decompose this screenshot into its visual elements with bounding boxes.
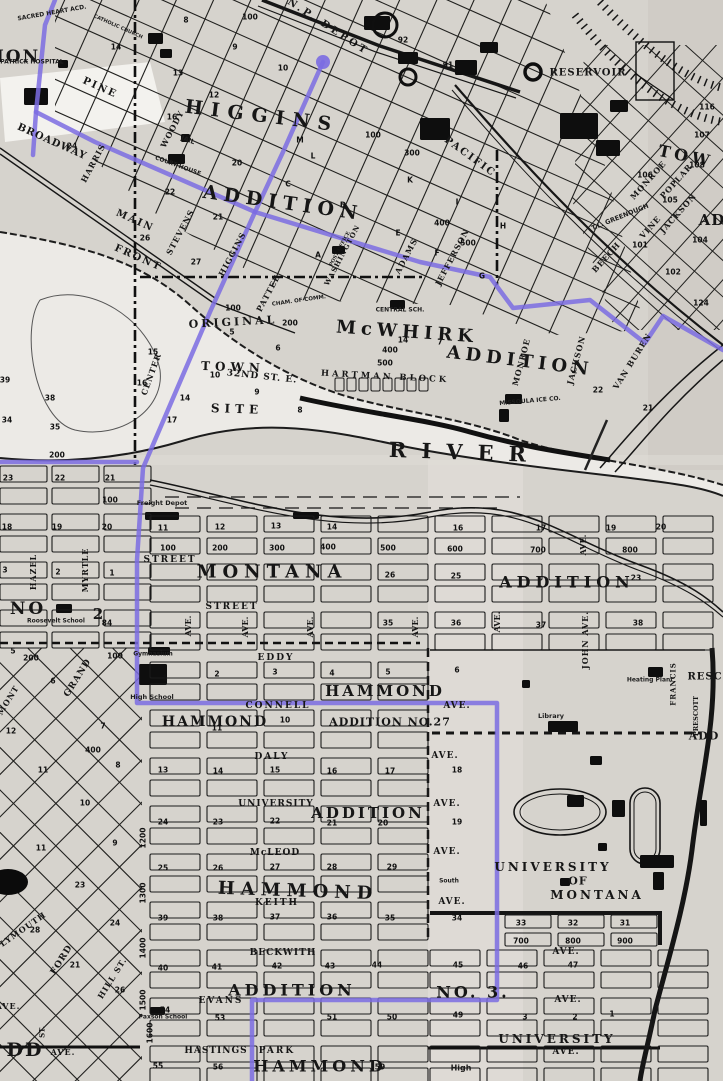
- block-number: 11: [158, 524, 168, 533]
- block-number: 500: [380, 544, 396, 553]
- region-label: UNIVERSITY: [498, 1032, 615, 1046]
- street-label: PACIFIC: [442, 135, 498, 180]
- region-label: DD: [7, 1039, 44, 1061]
- block-number: 13: [173, 69, 183, 78]
- block-number: 102: [665, 268, 681, 277]
- block-number: 900: [617, 937, 633, 946]
- street-label: MAIN: [114, 208, 156, 235]
- block-number: 91: [443, 61, 453, 70]
- poi-label: Heating Plant: [627, 677, 673, 684]
- block-number: 15: [148, 348, 158, 357]
- block-number: 92: [398, 36, 408, 45]
- block-number: 11: [36, 844, 46, 853]
- street-label: FRANCIS: [669, 662, 678, 706]
- street-label: STREET: [143, 555, 196, 565]
- street-label: AVE.: [552, 947, 579, 957]
- block-number: 43: [325, 962, 335, 971]
- block-number: 21: [70, 961, 80, 970]
- street-label: AVE.: [578, 535, 588, 556]
- poi-label: High: [451, 1064, 472, 1073]
- block-number: 14: [213, 767, 223, 776]
- poi-label: COURT HOUSE: [154, 154, 202, 177]
- block-number: 29: [387, 863, 397, 872]
- block-number: 5: [229, 328, 234, 337]
- block-number: 21: [327, 819, 337, 828]
- block-number: 35: [385, 914, 395, 923]
- region-label: HARTMAN BLOCK: [321, 369, 450, 386]
- block-number: 42: [272, 962, 282, 971]
- block-number: 28: [327, 863, 337, 872]
- block-number: 24: [110, 919, 120, 928]
- block-number: 107: [694, 131, 710, 140]
- block-number: 1500: [139, 990, 148, 1011]
- block-number: 44: [372, 961, 382, 970]
- block-number: 25: [158, 864, 168, 873]
- block-number: 1: [162, 674, 167, 683]
- block-number: 59: [375, 1063, 385, 1072]
- block-number: 21: [213, 213, 223, 222]
- street-label: AVE.: [492, 612, 502, 633]
- region-label: UNIVERSITY: [494, 860, 611, 874]
- block-number: 16: [327, 767, 337, 776]
- block-number: 38: [633, 619, 643, 628]
- block-number: 1: [109, 569, 114, 578]
- street-label: JOHN AVE.: [580, 611, 590, 669]
- street-label: PLYMOUTH: [0, 909, 48, 952]
- region-label: AD: [699, 211, 723, 229]
- block-number: 14: [111, 43, 121, 52]
- block-number: 400: [382, 346, 398, 355]
- block-number: 33: [516, 919, 526, 928]
- block-number: 55: [153, 1062, 163, 1071]
- block-number: 300: [404, 149, 420, 158]
- block-number: 37: [536, 621, 546, 630]
- block-number: 700: [513, 937, 529, 946]
- block-number: 14: [180, 394, 190, 403]
- block-number: 18: [452, 766, 462, 775]
- block-number: 17: [167, 416, 177, 425]
- block-number: 16: [167, 113, 177, 122]
- street-label: VAN BUREN: [611, 331, 654, 391]
- street-label: AVE.: [552, 1047, 579, 1057]
- street-label: PATTEE: [254, 273, 282, 314]
- block-number: 800: [565, 937, 581, 946]
- street-label: GRAND: [62, 657, 93, 699]
- block-number: 38: [45, 394, 55, 403]
- block-number: 600: [447, 545, 463, 554]
- block-number: 47: [568, 961, 578, 970]
- block-number: 84: [102, 619, 112, 628]
- block-number: 39: [158, 914, 168, 923]
- block-number: 3: [272, 668, 277, 677]
- street-label: HASTINGS: [184, 1046, 247, 1056]
- street-label: AVE.: [438, 897, 465, 907]
- block-number: 45: [453, 961, 463, 970]
- block-number: 10: [278, 64, 288, 73]
- region-label: MONTANA: [197, 562, 348, 583]
- street-label: AVE.: [431, 751, 458, 761]
- region-label: ADDITION NO.27: [329, 716, 451, 729]
- block-number: 104: [692, 236, 708, 245]
- street-label: BROADWAY: [16, 122, 89, 163]
- street-label: DALY: [255, 752, 290, 762]
- street-label: AVE.: [51, 1047, 76, 1057]
- block-number: D: [340, 201, 346, 210]
- block-number: 56: [213, 1063, 223, 1072]
- block-number: 16: [137, 379, 147, 388]
- block-number: 11: [212, 724, 222, 733]
- street-label: EVANS: [199, 996, 244, 1006]
- block-number: 22: [55, 474, 65, 483]
- street-label: AVE.: [305, 617, 315, 638]
- block-number: 2: [214, 670, 219, 679]
- plat-map: IONHIGGINSADDITIONTOWADMcWHIRKADDITIONOR…: [0, 0, 723, 1081]
- block-number: 19: [452, 818, 462, 827]
- block-number: 26: [140, 234, 150, 243]
- block-number: 12: [209, 91, 219, 100]
- block-number: 20: [232, 159, 242, 168]
- region-label: RIVER: [389, 437, 542, 467]
- block-number: 18: [2, 523, 12, 532]
- block-number: 100: [242, 13, 258, 22]
- street-label: ST.: [38, 1026, 47, 1038]
- block-number: 5: [10, 647, 15, 656]
- street-label: CONNELL: [246, 701, 311, 711]
- block-number: 100: [160, 544, 176, 553]
- block-number: 101: [632, 241, 648, 250]
- block-number: 105: [662, 196, 678, 205]
- street-label: BECKWITH: [250, 948, 317, 958]
- block-number: 100: [365, 131, 381, 140]
- poi-label: CENTRAL SCH.: [376, 307, 425, 314]
- poi-label: CATHOLIC CHURCH: [93, 13, 144, 40]
- block-number: 10: [210, 371, 220, 380]
- street-label: FRONT: [113, 243, 164, 274]
- poi-label: Gymnasium: [133, 651, 173, 658]
- block-number: 1400: [139, 938, 148, 959]
- block-number: 34: [2, 416, 12, 425]
- block-number: 20: [102, 523, 112, 532]
- block-number: 200: [282, 319, 298, 328]
- region-label: ADDITION: [499, 573, 635, 592]
- block-number: F: [434, 249, 439, 258]
- street-label: MYRTLE: [80, 548, 90, 593]
- block-number: A: [315, 251, 321, 260]
- block-number: 7: [437, 338, 442, 347]
- block-number: 23: [75, 881, 85, 890]
- block-number: 1300: [139, 883, 148, 904]
- block-number: 200: [212, 544, 228, 553]
- block-number: 26: [385, 571, 395, 580]
- block-number: 10: [280, 716, 290, 725]
- block-number: 10: [80, 799, 90, 808]
- block-number: 9: [232, 43, 237, 52]
- block-number: 7: [100, 722, 105, 731]
- region-label: HAMMOND: [253, 1057, 386, 1076]
- block-number: 28: [30, 926, 40, 935]
- block-number: 400: [85, 746, 101, 755]
- block-number: 15: [270, 766, 280, 775]
- block-number: 2: [55, 568, 60, 577]
- block-number: 41: [212, 963, 222, 972]
- block-number: 35: [383, 619, 393, 628]
- block-number: 25: [451, 572, 461, 581]
- block-number: L: [311, 152, 316, 161]
- street-label: PARK: [259, 1046, 295, 1056]
- block-number: 500: [460, 239, 476, 248]
- block-number: 53: [215, 1014, 225, 1023]
- block-number: 21: [105, 474, 115, 483]
- block-number: 24: [158, 818, 168, 827]
- block-number: 26: [115, 986, 125, 995]
- block-number: 1600: [146, 1023, 155, 1044]
- block-number: 2: [572, 1013, 577, 1022]
- block-number: 500: [377, 359, 393, 368]
- block-number: 5: [385, 668, 390, 677]
- region-label: RESC: [687, 672, 722, 683]
- block-number: 39: [0, 376, 10, 385]
- poi-label: High School: [130, 693, 174, 701]
- block-number: 35: [50, 423, 60, 432]
- block-number: 14: [398, 336, 408, 345]
- region-label: OF: [568, 875, 587, 888]
- street-label: AVE.: [443, 701, 470, 711]
- street-label: HARRIS: [79, 142, 108, 184]
- block-number: 38: [213, 914, 223, 923]
- poi-label: Freight Depot: [137, 499, 188, 507]
- block-number: 22: [270, 817, 280, 826]
- street-label: EDDY: [258, 653, 295, 663]
- poi-label: MISSOULA ICE CO.: [499, 395, 561, 407]
- block-number: 9: [254, 388, 259, 397]
- poi-label: Paxson School: [139, 1014, 188, 1021]
- block-number: 1200: [139, 828, 148, 849]
- block-number: 116: [699, 103, 715, 112]
- poi-label: Library: [538, 712, 564, 720]
- block-number: 40: [158, 964, 168, 973]
- block-number: 50: [387, 1013, 397, 1022]
- block-number: 700: [530, 546, 546, 555]
- block-number: 20: [378, 819, 388, 828]
- region-label: NO: [10, 599, 46, 619]
- street-label: AVE.: [240, 617, 250, 638]
- block-number: E: [395, 229, 400, 238]
- street-label: STREET: [205, 602, 258, 612]
- street-label: MONT: [0, 683, 21, 716]
- poi-label: South: [439, 878, 459, 885]
- street-label: UNIVERSITY: [238, 799, 313, 809]
- block-number: M: [296, 136, 303, 145]
- block-number: 6: [454, 666, 459, 675]
- block-number: 13: [158, 766, 168, 775]
- street-label: HIGGINS: [216, 230, 248, 278]
- block-number: 13: [271, 522, 281, 531]
- street-label: AVE.: [554, 995, 581, 1005]
- block-number: 108: [689, 161, 705, 170]
- street-label: AVE.: [0, 1001, 20, 1011]
- block-number: K: [407, 176, 413, 185]
- block-number: 800: [622, 546, 638, 555]
- region-label: NO. 3.: [436, 983, 509, 1002]
- block-number: 14: [327, 523, 337, 532]
- block-number: 6: [50, 677, 55, 686]
- block-number: 200: [49, 451, 65, 460]
- block-number: 19: [52, 523, 62, 532]
- street-label: PRESCOTT: [692, 696, 700, 736]
- block-number: 100: [107, 652, 123, 661]
- block-number: 27: [270, 863, 280, 872]
- block-number: 400: [320, 543, 336, 552]
- street-label: WASHINGTON: [322, 223, 362, 287]
- street-label: McLEOD: [250, 848, 300, 858]
- street-label: BEECH: [590, 240, 623, 275]
- street-label: STEVENS: [164, 207, 196, 256]
- block-number: 26: [213, 864, 223, 873]
- block-number: 8: [297, 406, 302, 415]
- block-number: 124: [693, 299, 709, 308]
- street-label: ADAMS: [392, 236, 419, 275]
- block-number: 49: [453, 1011, 463, 1020]
- poi-label: SACRED HEART ACD.: [17, 3, 87, 22]
- block-number: 16: [453, 524, 463, 533]
- poi-label: JAIL: [180, 134, 196, 146]
- block-number: 12: [215, 523, 225, 532]
- street-label: AVE.: [433, 847, 460, 857]
- block-number: 6: [275, 344, 280, 353]
- block-number: 4: [329, 669, 334, 678]
- block-number: C: [285, 180, 291, 189]
- block-number: 8: [115, 761, 120, 770]
- poi-label: CHAM. OF COMM.: [272, 294, 327, 308]
- block-number: 17: [536, 524, 546, 533]
- block-number: I: [456, 198, 459, 207]
- block-number: 1: [609, 1010, 614, 1019]
- block-number: 3: [522, 1013, 527, 1022]
- block-number: 34: [452, 914, 462, 923]
- block-number: 36: [327, 913, 337, 922]
- region-label: MONTANA: [550, 888, 644, 902]
- street-label: AVE.: [433, 799, 460, 809]
- block-number: 19: [606, 524, 616, 533]
- block-number: 27: [191, 258, 201, 267]
- region-label: RESERVOIR: [549, 68, 626, 79]
- block-number: 37: [270, 913, 280, 922]
- street-label: AVE.: [410, 617, 420, 638]
- block-number: 36: [451, 619, 461, 628]
- block-number: 32: [568, 919, 578, 928]
- block-number: 22: [593, 386, 603, 395]
- street-label: CENTER: [139, 351, 164, 396]
- block-number: 12: [6, 727, 16, 736]
- block-number: 54: [160, 1006, 170, 1015]
- poi-label: Roosevelt School: [27, 618, 85, 625]
- label-layer: IONHIGGINSADDITIONTOWADMcWHIRKADDITIONOR…: [0, 0, 723, 1081]
- region-label: N.P. DEPOT: [285, 0, 370, 57]
- block-number: 300: [269, 544, 285, 553]
- block-number: 23: [631, 574, 641, 583]
- poi-label: ST. PATRICK HOSPITAL: [0, 59, 64, 66]
- street-label: PINE: [81, 75, 119, 100]
- block-number: 400: [434, 219, 450, 228]
- block-number: 106: [637, 171, 653, 180]
- street-label: HAZEL: [28, 554, 38, 590]
- block-number: 100: [225, 304, 241, 313]
- block-number: G: [479, 272, 485, 281]
- region-label: SITE: [211, 401, 264, 417]
- block-number: 20: [656, 523, 666, 532]
- block-number: 46: [518, 962, 528, 971]
- block-number: 31: [620, 919, 630, 928]
- block-number: H: [500, 222, 506, 231]
- block-number: 9: [112, 839, 117, 848]
- block-number: 3: [2, 566, 7, 575]
- block-number: 100: [102, 496, 118, 505]
- region-label: ADDITION: [228, 981, 356, 1000]
- region-label: HIGGINS: [184, 96, 341, 137]
- block-number: 8: [183, 16, 188, 25]
- block-number: 21: [643, 404, 653, 413]
- street-label: AVE.: [183, 616, 193, 637]
- block-number: 17: [385, 767, 395, 776]
- block-number: 11: [38, 766, 48, 775]
- block-number: 51: [327, 1013, 337, 1022]
- block-number: 200: [23, 654, 39, 663]
- block-number: 23: [3, 474, 13, 483]
- block-number: 22: [165, 188, 175, 197]
- region-label: HAMMOND: [325, 682, 445, 700]
- street-label: KEITH: [255, 898, 299, 908]
- block-number: 23: [213, 818, 223, 827]
- block-number: 24: [67, 142, 77, 151]
